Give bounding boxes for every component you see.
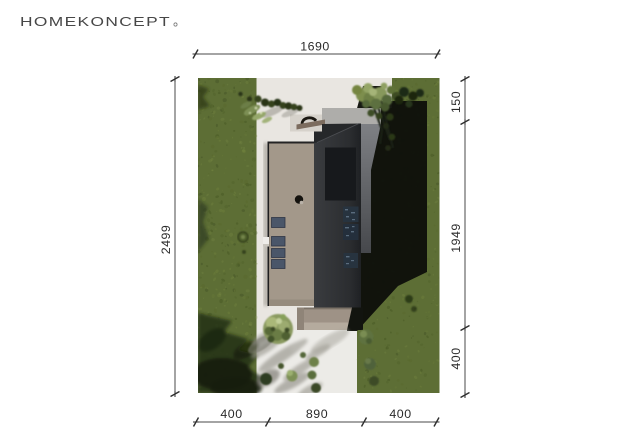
- svg-text:1949: 1949: [449, 223, 463, 253]
- svg-text:HOMEKONCEPT: HOMEKONCEPT: [20, 14, 171, 29]
- svg-text:400: 400: [389, 407, 411, 421]
- svg-text:1690: 1690: [300, 39, 330, 53]
- svg-text:400: 400: [449, 347, 463, 369]
- svg-text:400: 400: [220, 407, 242, 421]
- svg-text:2499: 2499: [159, 225, 173, 255]
- svg-text:150: 150: [449, 91, 463, 113]
- svg-text:890: 890: [306, 407, 328, 421]
